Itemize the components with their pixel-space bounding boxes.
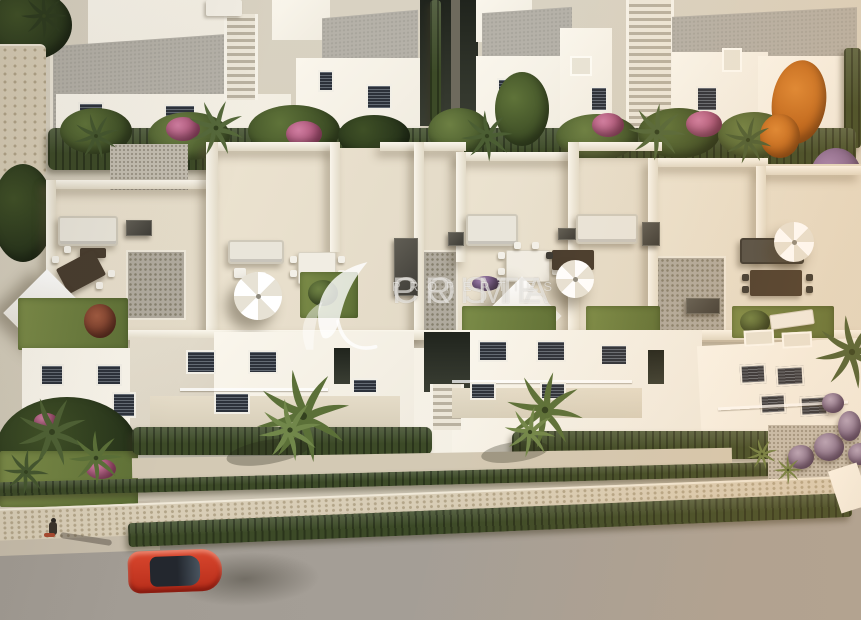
pebble-courtyard (126, 250, 186, 320)
chair (546, 252, 553, 259)
patio-shrub (308, 280, 338, 306)
patio-umbrella (556, 260, 594, 298)
parapet-wall (458, 152, 578, 161)
skylight-window (722, 48, 742, 72)
window (96, 364, 122, 386)
planter-flowers (472, 276, 500, 291)
front-hedge (132, 427, 432, 455)
skylight-window (570, 56, 592, 76)
parapet-wall (206, 142, 336, 151)
rooftop-terraces (0, 140, 861, 350)
chair (52, 256, 59, 263)
patio-umbrella (774, 222, 814, 262)
chair (514, 242, 521, 249)
pink-flower-bush (686, 111, 722, 137)
storage-box (448, 232, 464, 246)
window (739, 363, 766, 384)
entry-niche (648, 350, 664, 384)
chair (96, 282, 103, 289)
ac-unit (394, 238, 418, 296)
lavender-ball-bush (822, 393, 844, 413)
outdoor-sofa (228, 240, 284, 264)
parapet-wall (658, 158, 768, 167)
chair (532, 242, 539, 249)
chair (742, 286, 749, 293)
entry-niche (334, 348, 350, 384)
outdoor-sofa (466, 214, 518, 246)
pebble-courtyard (418, 250, 458, 338)
window (318, 70, 334, 92)
lavender-ball-bush (838, 411, 861, 441)
window (536, 340, 566, 362)
tree-by-facade (495, 72, 549, 146)
pink-flower-bush (592, 113, 624, 137)
chair (806, 274, 813, 281)
chair (806, 286, 813, 293)
pink-flower-bush (166, 117, 200, 141)
pink-flower-bush (86, 459, 116, 479)
dining-table (506, 250, 550, 282)
aerial-render-scene: COSTA PRIME PROPERTIES (0, 0, 861, 620)
skylight-window (782, 331, 813, 349)
parapet-wall (46, 180, 216, 189)
storage-box (686, 298, 720, 314)
stairwell (424, 332, 470, 392)
patio-umbrella (234, 272, 282, 320)
storage-box (558, 228, 576, 240)
lavender-ball-bush (814, 433, 844, 461)
window (186, 350, 216, 374)
car-roof-windshield (149, 555, 200, 587)
outdoor-sofa (576, 214, 638, 244)
storage-box (126, 220, 152, 236)
window (600, 344, 628, 366)
chair (108, 270, 115, 277)
chair (498, 268, 505, 275)
dining-table (750, 270, 802, 296)
window (478, 340, 508, 362)
chair (498, 252, 505, 259)
skylight-window (744, 329, 775, 347)
outdoor-sofa (58, 216, 118, 246)
chair (64, 246, 71, 253)
window (775, 365, 804, 386)
window (40, 364, 64, 386)
chair (290, 270, 297, 277)
dividing-wall (330, 142, 340, 252)
pedestrian (46, 518, 62, 544)
window (248, 350, 278, 374)
chair (338, 256, 345, 263)
rooftop-dining-set (206, 0, 242, 16)
chair (742, 274, 749, 281)
parapet-wall (762, 166, 861, 175)
pink-flower-bush (34, 413, 58, 429)
parapet-wall (578, 142, 662, 151)
lavender-ball-bush (788, 445, 814, 469)
pedestrian-red-item (44, 533, 55, 537)
chair (290, 256, 297, 263)
exterior-staircase (224, 14, 258, 100)
window (352, 378, 378, 394)
balcony-railing (180, 388, 328, 391)
dividing-wall (206, 142, 218, 338)
storage-box (642, 222, 660, 246)
red-car (127, 542, 229, 599)
